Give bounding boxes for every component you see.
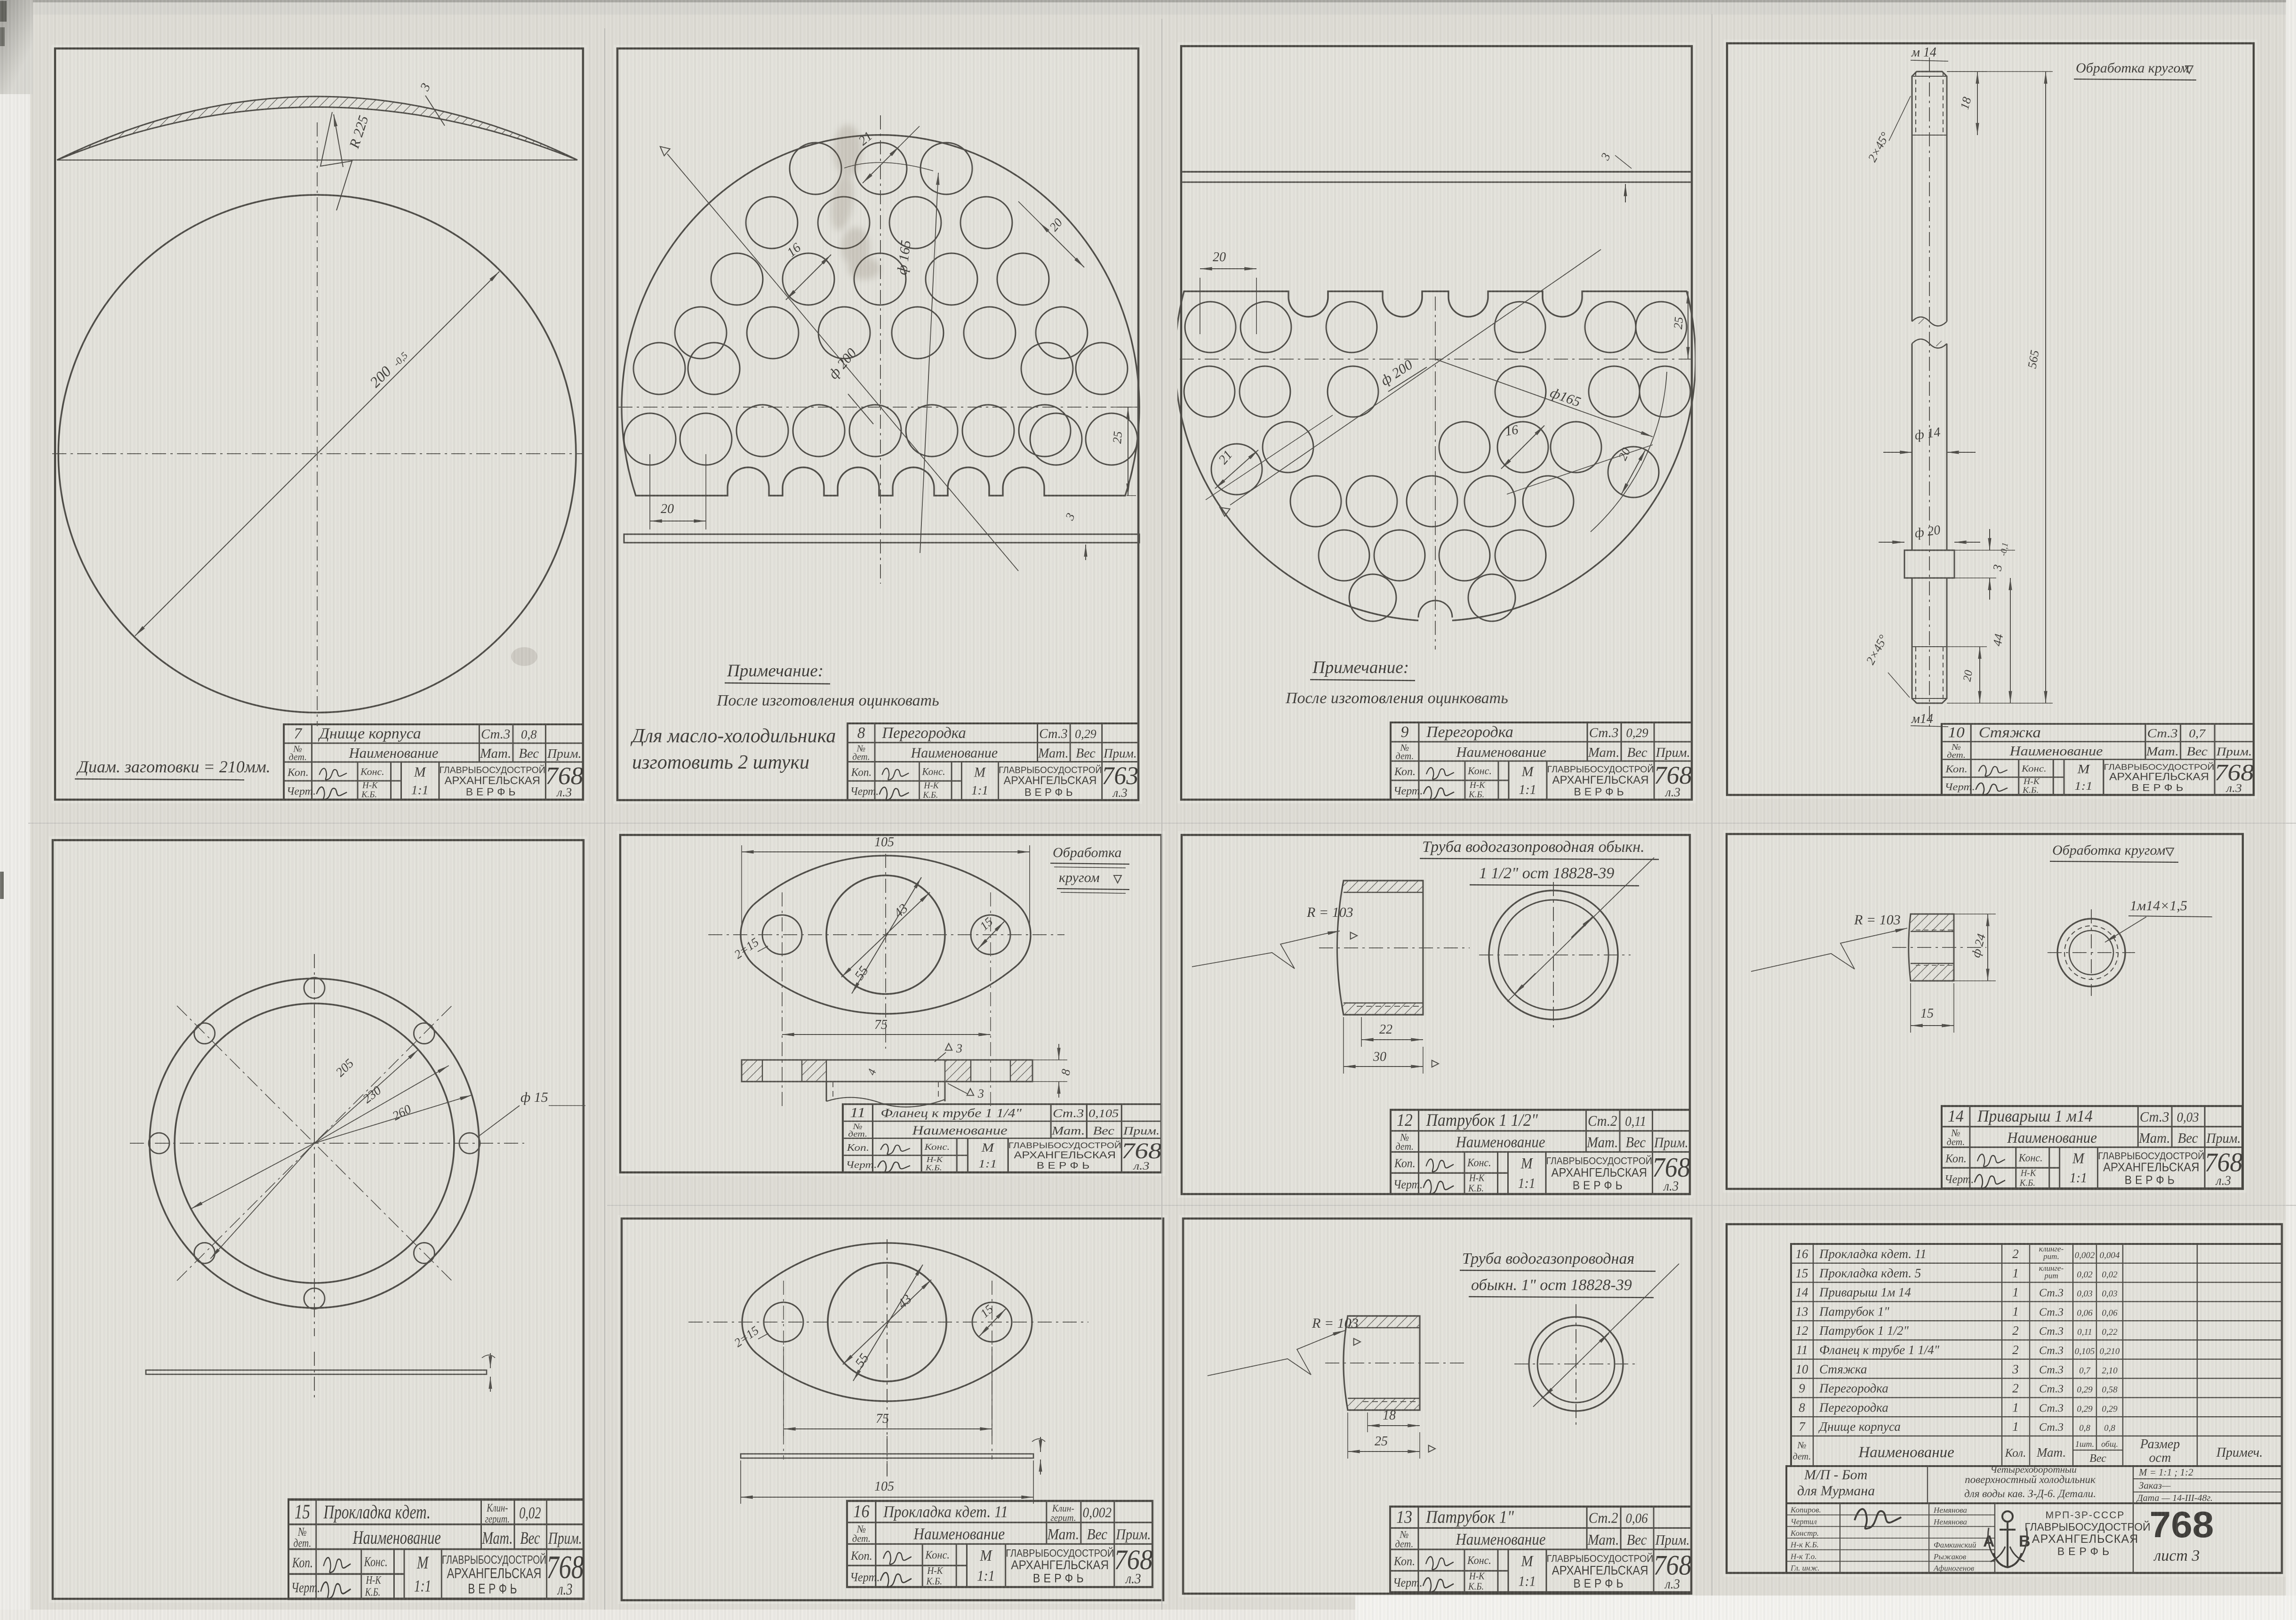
svg-text:рит.: рит.: [2043, 1252, 2059, 1261]
svg-text:Н-К: Н-К: [926, 1155, 944, 1164]
svg-text:0,02: 0,02: [2077, 1270, 2093, 1280]
svg-text:М: М: [2072, 1150, 2085, 1167]
svg-text:13: 13: [1796, 1304, 1808, 1318]
svg-text:0,02: 0,02: [519, 1503, 541, 1522]
svg-text:7: 7: [294, 725, 302, 743]
svg-text:0,03: 0,03: [2077, 1289, 2092, 1299]
svg-text:Прокладка кдет. 11: Прокладка кдет. 11: [883, 1503, 1008, 1521]
svg-text:Патрубок 1": Патрубок 1": [1425, 1507, 1514, 1527]
svg-text:ф 24: ф 24: [1969, 932, 1988, 959]
svg-text:10: 10: [1796, 1362, 1809, 1376]
svg-text:Заказ—: Заказ—: [2139, 1480, 2171, 1491]
svg-text:1:1: 1:1: [977, 1568, 995, 1584]
svg-text:2=15: 2=15: [732, 935, 761, 962]
svg-text:К.Б.: К.Б.: [361, 790, 377, 800]
svg-text:дет.: дет.: [848, 1130, 867, 1139]
svg-text:Наименование: Наименование: [352, 1527, 441, 1548]
svg-text:Ст.3: Ст.3: [2039, 1364, 2064, 1376]
svg-text:R = 103: R = 103: [1306, 905, 1353, 920]
svg-text:М: М: [1520, 1155, 1534, 1172]
svg-text:МРП-ЗР-СССР: МРП-ЗР-СССР: [2046, 1510, 2125, 1521]
svg-text:ВЕРФЬ: ВЕРФЬ: [1024, 786, 1076, 798]
svg-text:Наименование: Наименование: [912, 1123, 1007, 1138]
svg-text:12: 12: [1397, 1110, 1413, 1130]
svg-text:1:1: 1:1: [1518, 1573, 1536, 1589]
svg-text:Прокладка кдет. 5: Прокладка кдет. 5: [1819, 1266, 1921, 1280]
svg-text:л.3: л.3: [1125, 1571, 1141, 1587]
svg-text:230: 230: [360, 1083, 384, 1106]
svg-text:1м14×1,5: 1м14×1,5: [2130, 898, 2187, 914]
svg-text:Конс.: Конс.: [1467, 1156, 1491, 1169]
svg-text:Мат.: Мат.: [480, 746, 511, 761]
svg-text:кругом: кругом: [1059, 870, 1100, 885]
svg-text:75: 75: [874, 1018, 888, 1032]
svg-text:Днище корпуса: Днище корпуса: [318, 725, 421, 743]
svg-text:Черт.: Черт.: [1944, 1173, 1974, 1186]
svg-text:Перегородка: Перегородка: [1426, 723, 1513, 741]
svg-text:Примечание:: Примечание:: [727, 661, 824, 681]
svg-text:1шт.: 1шт.: [2075, 1439, 2094, 1449]
svg-text:0,29: 0,29: [2077, 1404, 2093, 1414]
svg-text:9: 9: [1799, 1381, 1805, 1395]
svg-text:Мат.: Мат.: [2146, 745, 2179, 759]
svg-text:Труба водогазопроводная: Труба водогазопроводная: [1462, 1250, 1634, 1267]
svg-text:Рыжаков: Рыжаков: [1933, 1552, 1967, 1561]
svg-text:Ст.3: Ст.3: [2039, 1306, 2064, 1318]
svg-text:20: 20: [1213, 250, 1226, 265]
svg-text:Ст.3: Ст.3: [1053, 1107, 1084, 1120]
svg-text:Черт.: Черт.: [850, 1570, 880, 1584]
svg-text:Для масло-холодильника: Для масло-холодильника: [630, 725, 836, 747]
svg-text:Н-К: Н-К: [2020, 1168, 2037, 1179]
svg-text:0,29: 0,29: [1075, 726, 1096, 740]
svg-text:ост: ост: [2149, 1451, 2171, 1465]
svg-text:Афиногенов: Афиногенов: [1933, 1564, 1975, 1573]
svg-text:0,58: 0,58: [2102, 1385, 2118, 1395]
svg-text:Мат.: Мат.: [1586, 1134, 1618, 1151]
svg-text:1:1: 1:1: [1518, 1176, 1536, 1191]
svg-text:л.3: л.3: [2225, 781, 2242, 794]
svg-text:Прокладка кдет.: Прокладка кдет.: [323, 1501, 431, 1523]
svg-text:Н-К: Н-К: [1469, 1173, 1485, 1184]
svg-text:0,02: 0,02: [2102, 1270, 2118, 1280]
svg-text:для Мурмана: для Мурмана: [1797, 1483, 1875, 1499]
svg-text:20: 20: [1616, 446, 1633, 463]
svg-text:л.3: л.3: [1664, 785, 1680, 799]
svg-text:Патрубок 1 1/2": Патрубок 1 1/2": [1819, 1323, 1909, 1338]
svg-text:ГЛАВРЫБОСУДОСТРОЙ: ГЛАВРЫБОСУДОСТРОЙ: [440, 765, 545, 776]
svg-text:ВЕРФЬ: ВЕРФЬ: [2057, 1545, 2113, 1557]
svg-text:Коп.: Коп.: [850, 1548, 872, 1563]
svg-text:Прим.: Прим.: [1115, 1526, 1151, 1543]
svg-text:общ.: общ.: [2101, 1439, 2118, 1449]
svg-text:Чертил: Чертил: [1791, 1517, 1817, 1526]
svg-text:Черт.: Черт.: [287, 785, 316, 797]
svg-text:0,8: 0,8: [521, 727, 537, 741]
svg-text:ВЕРФЬ: ВЕРФЬ: [2125, 1174, 2178, 1187]
svg-text:Наименование: Наименование: [1456, 1133, 1545, 1151]
svg-text:260: 260: [390, 1102, 414, 1123]
svg-text:Фланец к трубе 1 1/4": Фланец к трубе 1 1/4": [1819, 1343, 1940, 1357]
svg-text:44: 44: [1990, 633, 2006, 647]
svg-text:Н-К: Н-К: [923, 781, 939, 791]
svg-text:для воды кав. З-Д-6. Детали.: для воды кав. З-Д-6. Детали.: [1964, 1488, 2096, 1500]
svg-text:Ст.3: Ст.3: [2039, 1287, 2064, 1299]
svg-text:ГЛАВРЫБОСУДОСТРОЙ: ГЛАВРЫБОСУДОСТРОЙ: [1006, 1547, 1114, 1559]
svg-text:0,210: 0,210: [2100, 1347, 2120, 1356]
svg-text:Мат.: Мат.: [2036, 1445, 2066, 1460]
svg-text:М: М: [2077, 762, 2090, 776]
svg-text:25: 25: [1671, 316, 1686, 329]
svg-text:Ст.3: Ст.3: [2140, 1109, 2169, 1125]
svg-text:Мат.: Мат.: [1038, 746, 1068, 761]
svg-text:Прим.: Прим.: [1655, 1532, 1690, 1548]
svg-text:3: 3: [2012, 1362, 2019, 1376]
svg-text:АРХАНГЕЛЬСКАЯ: АРХАНГЕЛЬСКАЯ: [2109, 771, 2209, 782]
svg-text:2: 2: [2012, 1343, 2019, 1357]
svg-text:л.3: л.3: [557, 1580, 572, 1598]
svg-text:Приварыш 1 м14: Приварыш 1 м14: [1977, 1107, 2093, 1125]
svg-text:Коп.: Коп.: [1945, 763, 1968, 775]
svg-text:1: 1: [2012, 1304, 2019, 1318]
svg-text:Коп.: Коп.: [846, 1142, 869, 1154]
svg-text:ВЕРФЬ: ВЕРФЬ: [2131, 782, 2186, 793]
svg-text:-0,1: -0,1: [1998, 542, 2010, 557]
svg-text:М: М: [1521, 764, 1535, 779]
svg-text:Дата — 14-III-48г.: Дата — 14-III-48г.: [2136, 1493, 2213, 1503]
svg-text:Труба водогазопроводная обыкн.: Труба водогазопроводная обыкн.: [1422, 838, 1645, 856]
svg-text:дет.: дет.: [1947, 1137, 1965, 1148]
svg-text:Кол.: Кол.: [2005, 1447, 2026, 1460]
svg-text:Ст.3: Ст.3: [2039, 1325, 2064, 1338]
svg-text:9: 9: [1401, 723, 1409, 741]
svg-text:Наименование: Наименование: [2009, 744, 2103, 759]
svg-text:Немянова: Немянова: [1933, 1517, 1967, 1526]
svg-text:Наименование: Наименование: [913, 1525, 1005, 1543]
svg-text:16: 16: [853, 1501, 869, 1521]
svg-text:ГЛАВРЫБОСУДОСТРОЙ: ГЛАВРЫБОСУДОСТРОЙ: [1547, 1553, 1653, 1564]
svg-text:К.Б.: К.Б.: [1468, 790, 1484, 800]
svg-text:Обработка кругом: Обработка кругом: [2052, 842, 2166, 858]
svg-text:3: 3: [1598, 151, 1613, 162]
svg-text:л.3: л.3: [1664, 1577, 1680, 1592]
svg-text:25: 25: [1375, 1434, 1388, 1449]
svg-text:Вес: Вес: [1626, 1532, 1647, 1548]
svg-text:Коп.: Коп.: [1945, 1152, 1967, 1165]
svg-text:Днище корпуса: Днище корпуса: [1818, 1420, 1901, 1434]
svg-text:0,002: 0,002: [2075, 1251, 2095, 1260]
svg-text:Немянова: Немянова: [1933, 1506, 1967, 1515]
svg-text:3: 3: [956, 1042, 962, 1055]
svg-text:Конс.: Конс.: [925, 1549, 950, 1562]
svg-text:ГЛАВРЫБОСУДОСТРОЙ: ГЛАВРЫБОСУДОСТРОЙ: [2098, 1150, 2204, 1162]
svg-text:Прим.: Прим.: [548, 1528, 582, 1548]
svg-text:л.3: л.3: [2215, 1173, 2231, 1188]
svg-text:Прим.: Прим.: [2216, 745, 2252, 758]
svg-text:Н-К: Н-К: [1469, 780, 1486, 790]
svg-text:8: 8: [1799, 1400, 1805, 1414]
svg-text:Размер: Размер: [2140, 1437, 2180, 1452]
svg-text:0,03: 0,03: [2102, 1289, 2117, 1299]
svg-text:Н-к К.Б.: Н-к К.Б.: [1790, 1540, 1819, 1549]
svg-text:Перегородка: Перегородка: [1819, 1400, 1888, 1414]
svg-text:25: 25: [1110, 431, 1125, 444]
svg-text:ф 20: ф 20: [1914, 523, 1942, 541]
svg-text:0,03: 0,03: [2177, 1110, 2199, 1125]
svg-text:0,22: 0,22: [2102, 1327, 2118, 1337]
svg-text:-0,5: -0,5: [391, 350, 410, 369]
svg-text:Патрубок 1 1/2": Патрубок 1 1/2": [1426, 1110, 1538, 1130]
svg-text:1:1: 1:1: [971, 783, 988, 797]
svg-text:R = 103: R = 103: [1312, 1315, 1359, 1331]
svg-text:изготовить 2 штуки: изготовить 2 штуки: [632, 752, 809, 773]
svg-text:рит: рит: [2044, 1271, 2058, 1280]
svg-text:0,8: 0,8: [2079, 1423, 2090, 1433]
svg-text:0,7: 0,7: [2189, 727, 2206, 740]
svg-text:Н-К: Н-К: [1469, 1571, 1485, 1581]
svg-text:205: 205: [333, 1056, 356, 1080]
svg-text:ф 15: ф 15: [520, 1090, 548, 1105]
svg-text:0,06: 0,06: [2102, 1308, 2118, 1318]
svg-text:16: 16: [1796, 1247, 1809, 1261]
svg-text:ф 165: ф 165: [894, 240, 914, 276]
svg-text:Коп.: Коп.: [1394, 766, 1416, 778]
svg-text:М: М: [974, 765, 986, 780]
svg-text:К.Б.: К.Б.: [925, 1163, 942, 1172]
svg-text:3: 3: [417, 81, 433, 94]
svg-text:1 1/2" ост 18828-39: 1 1/2" ост 18828-39: [1479, 865, 1614, 882]
svg-text:Мат.: Мат.: [1051, 1124, 1085, 1138]
svg-text:М: М: [979, 1547, 993, 1564]
svg-text:М/П - Бот: М/П - Бот: [1804, 1467, 1867, 1483]
svg-text:13: 13: [1396, 1507, 1412, 1527]
svg-text:АРХАНГЕЛЬСКАЯ: АРХАНГЕЛЬСКАЯ: [444, 775, 540, 787]
svg-text:Наименование: Наименование: [1858, 1444, 1954, 1461]
svg-text:1: 1: [2012, 1400, 2019, 1414]
svg-text:12: 12: [1796, 1323, 1808, 1338]
svg-text:Диам. заготовки = 210мм.: Диам. заготовки = 210мм.: [76, 757, 271, 776]
svg-text:дет.: дет.: [289, 752, 307, 762]
svg-text:К.Б.: К.Б.: [2019, 1178, 2035, 1188]
svg-text:Черт.: Черт.: [291, 1580, 320, 1596]
svg-text:Стяжка: Стяжка: [1819, 1362, 1867, 1376]
svg-text:Примечание:: Примечание:: [1312, 658, 1409, 677]
svg-text:Коп.: Коп.: [1394, 1157, 1416, 1170]
svg-text:Прим.: Прим.: [1103, 746, 1137, 760]
svg-text:Мат.: Мат.: [1588, 745, 1620, 760]
svg-text:Вес: Вес: [519, 746, 539, 761]
svg-text:15: 15: [295, 1500, 310, 1523]
svg-text:0,29: 0,29: [1626, 726, 1648, 740]
svg-text:Мат.: Мат.: [481, 1528, 512, 1548]
svg-text:18: 18: [1383, 1408, 1396, 1423]
svg-text:Вес: Вес: [1627, 745, 1647, 760]
svg-text:0,11: 0,11: [2077, 1327, 2092, 1337]
svg-text:0,29: 0,29: [2102, 1404, 2118, 1414]
svg-text:ГЛАВРЫБОСУДОСТРОЙ: ГЛАВРЫБОСУДОСТРОЙ: [1547, 763, 1654, 775]
svg-text:Ст.2: Ст.2: [1588, 1113, 1617, 1130]
svg-text:Наименование: Наименование: [2007, 1129, 2097, 1146]
svg-text:Ст.3: Ст.3: [2039, 1383, 2064, 1395]
svg-text:Мат.: Мат.: [2138, 1130, 2170, 1146]
svg-text:АРХАНГЕЛЬСКАЯ: АРХАНГЕЛЬСКАЯ: [447, 1565, 542, 1581]
svg-text:11: 11: [850, 1105, 865, 1121]
svg-text:Обработка: Обработка: [1053, 845, 1121, 860]
svg-text:11: 11: [1796, 1343, 1808, 1357]
svg-text:0,105: 0,105: [1088, 1107, 1119, 1120]
svg-text:дет.: дет.: [1793, 1452, 1811, 1462]
svg-text:14: 14: [1948, 1107, 1964, 1125]
svg-text:Конс.: Конс.: [924, 1142, 950, 1152]
svg-text:Конс.: Конс.: [2021, 763, 2047, 774]
svg-text:565: 565: [2025, 349, 2041, 369]
svg-text:К.Б.: К.Б.: [1468, 1581, 1484, 1592]
svg-text:дет.: дет.: [1396, 1140, 1414, 1152]
svg-text:1: 1: [2012, 1266, 2019, 1280]
svg-text:2: 2: [2012, 1381, 2019, 1395]
svg-text:м 14: м 14: [1911, 45, 1936, 60]
svg-text:ВЕРФЬ: ВЕРФЬ: [1574, 786, 1627, 798]
svg-text:поверхностный холодильник: поверхностный холодильник: [1965, 1474, 2096, 1485]
svg-text:2: 2: [2012, 1323, 2019, 1338]
svg-text:1:1: 1:1: [978, 1157, 997, 1170]
svg-text:л.3: л.3: [1112, 786, 1128, 800]
svg-text:л.3: л.3: [1663, 1179, 1679, 1194]
svg-text:После изготовления оцинковать: После изготовления оцинковать: [1285, 690, 1508, 707]
svg-text:Прокладка кдет. 11: Прокладка кдет. 11: [1819, 1247, 1927, 1261]
svg-text:Конс.: Конс.: [364, 1555, 388, 1569]
svg-text:Коп.: Коп.: [851, 766, 872, 778]
svg-text:дет.: дет.: [852, 752, 870, 762]
svg-text:дет.: дет.: [1947, 751, 1966, 760]
svg-text:М: М: [1521, 1552, 1534, 1570]
svg-text:20: 20: [661, 502, 674, 516]
svg-text:16: 16: [1504, 423, 1520, 439]
svg-text:1:1: 1:1: [1519, 783, 1536, 797]
svg-text:АРХАНГЕЛЬСКАЯ: АРХАНГЕЛЬСКАЯ: [1004, 774, 1097, 786]
svg-text:АРХАНГЕЛЬСКАЯ: АРХАНГЕЛЬСКАЯ: [2032, 1532, 2138, 1546]
svg-text:1: 1: [2012, 1420, 2019, 1434]
svg-text:Конс.: Конс.: [1467, 1554, 1491, 1567]
svg-text:№: №: [1797, 1440, 1807, 1451]
svg-text:20: 20: [1961, 669, 1975, 682]
svg-text:Н-К: Н-К: [927, 1565, 944, 1576]
svg-text:В: В: [2019, 1532, 2031, 1550]
svg-text:А: А: [1983, 1532, 1995, 1550]
svg-text:10: 10: [1948, 724, 1965, 741]
svg-text:4: 4: [865, 1067, 879, 1077]
svg-text:0,29: 0,29: [2077, 1385, 2093, 1395]
svg-text:18: 18: [1958, 96, 1974, 111]
svg-text:Вес: Вес: [1087, 1525, 1108, 1543]
svg-text:22: 22: [1379, 1022, 1392, 1037]
svg-text:Обработка кругом: Обработка кругом: [2076, 60, 2189, 76]
svg-text:АРХАНГЕЛЬСКАЯ: АРХАНГЕЛЬСКАЯ: [1552, 774, 1649, 786]
svg-text:Н-К: Н-К: [362, 781, 378, 791]
svg-text:лист 3: лист 3: [2153, 1547, 2200, 1564]
svg-text:ВЕРФЬ: ВЕРФЬ: [466, 786, 519, 798]
svg-text:Вес: Вес: [2187, 745, 2208, 759]
svg-text:Фланец к трубе 1 1/4": Фланец к трубе 1 1/4": [880, 1107, 1022, 1120]
svg-text:15: 15: [978, 1302, 996, 1321]
svg-text:дет.: дет.: [852, 1532, 871, 1544]
svg-text:АРХАНГЕЛЬСКАЯ: АРХАНГЕЛЬСКАЯ: [1011, 1558, 1109, 1572]
svg-text:768: 768: [2150, 1504, 2214, 1545]
svg-text:768: 768: [1654, 1550, 1692, 1581]
svg-text:15: 15: [1796, 1266, 1808, 1280]
svg-text:Вес: Вес: [1076, 746, 1096, 761]
svg-text:Коп.: Коп.: [287, 766, 309, 778]
svg-text:АРХАНГЕЛЬСКАЯ: АРХАНГЕЛЬСКАЯ: [2103, 1161, 2199, 1174]
svg-text:8: 8: [857, 724, 865, 742]
svg-text:М: М: [981, 1141, 995, 1155]
svg-text:дет.: дет.: [1396, 751, 1414, 762]
svg-text:обыкн. 1" ост 18828-39: обыкн. 1" ост 18828-39: [1471, 1276, 1632, 1294]
svg-text:R = 103: R = 103: [1854, 912, 1901, 928]
svg-text:Прим.: Прим.: [547, 746, 582, 761]
svg-text:ВЕРФЬ: ВЕРФЬ: [468, 1580, 520, 1596]
svg-text:Гл. инж.: Гл. инж.: [1790, 1564, 1820, 1572]
svg-text:Стяжка: Стяжка: [1979, 724, 2041, 741]
svg-text:Ст.3: Ст.3: [2039, 1402, 2064, 1414]
svg-text:М: М: [416, 1553, 429, 1573]
svg-text:Констр.: Констр.: [1790, 1529, 1819, 1538]
svg-text:3: 3: [977, 1087, 984, 1100]
svg-text:2=15: 2=15: [732, 1323, 761, 1350]
svg-text:0,8: 0,8: [2104, 1423, 2115, 1433]
svg-text:К.Б.: К.Б.: [922, 790, 938, 800]
svg-text:К.Б.: К.Б.: [2022, 786, 2039, 795]
svg-text:Черт.: Черт.: [1944, 781, 1975, 793]
svg-text:Патрубок 1": Патрубок 1": [1819, 1304, 1889, 1318]
svg-text:Вес: Вес: [1093, 1124, 1115, 1138]
svg-text:Ст.3: Ст.3: [1039, 726, 1068, 741]
svg-text:Наименование: Наименование: [1455, 1531, 1545, 1549]
svg-text:Ст.3: Ст.3: [2147, 727, 2178, 740]
svg-text:Ст.3: Ст.3: [2039, 1421, 2064, 1434]
svg-text:2×45°: 2×45°: [1865, 130, 1892, 164]
svg-text:1:1: 1:1: [411, 783, 429, 797]
svg-text:ф165: ф165: [1548, 385, 1583, 410]
svg-text:Перегородка: Перегородка: [881, 724, 966, 742]
svg-text:0,06: 0,06: [2077, 1308, 2093, 1318]
svg-text:Черт.: Черт.: [1393, 785, 1423, 797]
svg-text:0,11: 0,11: [1625, 1114, 1646, 1129]
svg-text:1:1: 1:1: [2070, 1170, 2087, 1186]
svg-text:Вес: Вес: [1625, 1134, 1646, 1151]
svg-text:Перегородка: Перегородка: [1819, 1381, 1888, 1395]
svg-text:Фамкинский: Фамкинский: [1934, 1540, 1976, 1549]
svg-text:Вес: Вес: [2089, 1452, 2106, 1465]
svg-text:Конс.: Конс.: [921, 766, 945, 777]
svg-text:ГЛАВРЫБОСУДОСТРОЙ: ГЛАВРЫБОСУДОСТРОЙ: [1546, 1155, 1652, 1167]
svg-text:Мат.: Мат.: [1587, 1532, 1619, 1548]
svg-text:Прим.: Прим.: [1655, 746, 1690, 760]
svg-text:АРХАНГЕЛЬСКАЯ: АРХАНГЕЛЬСКАЯ: [1551, 1166, 1647, 1179]
svg-text:ВЕРФЬ: ВЕРФЬ: [1037, 1160, 1093, 1171]
svg-text:Ст.3: Ст.3: [2039, 1345, 2064, 1357]
svg-text:2×45°: 2×45°: [1864, 633, 1890, 667]
svg-text:R 225: R 225: [346, 114, 372, 151]
svg-text:М: М: [414, 765, 426, 780]
svg-text:М = 1:1 ; 1:2: М = 1:1 ; 1:2: [2138, 1467, 2193, 1478]
svg-text:7: 7: [1799, 1420, 1806, 1434]
svg-text:Ст.3: Ст.3: [1589, 725, 1619, 740]
svg-text:Конс.: Конс.: [2018, 1152, 2043, 1164]
svg-text:Ст.2: Ст.2: [1589, 1509, 1618, 1526]
svg-text:105: 105: [874, 835, 894, 850]
svg-text:Черт.: Черт.: [1393, 1178, 1423, 1191]
